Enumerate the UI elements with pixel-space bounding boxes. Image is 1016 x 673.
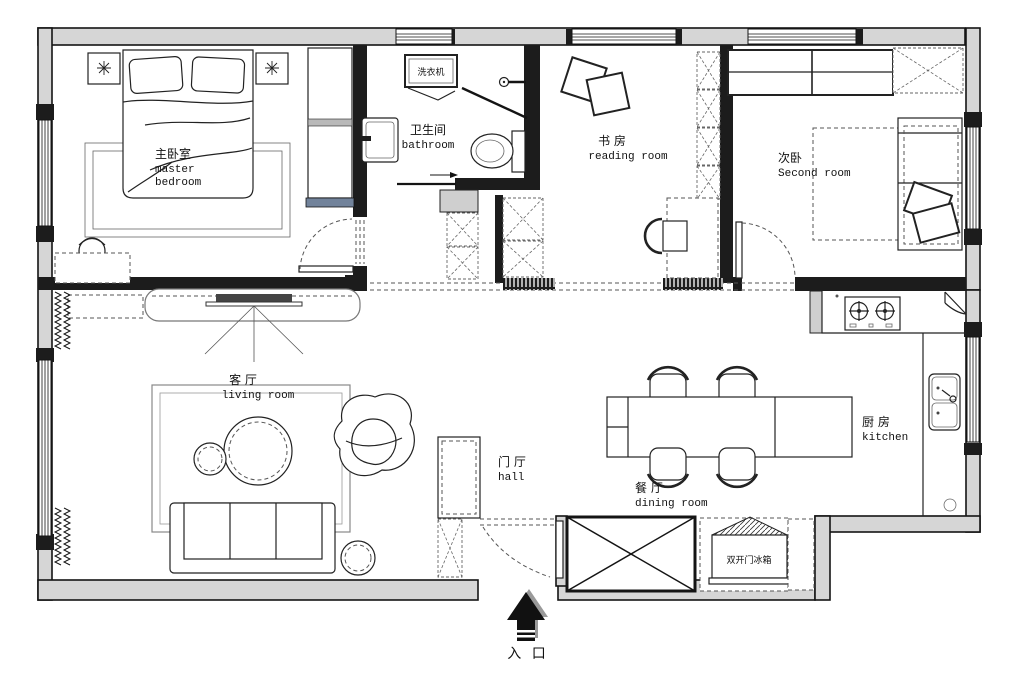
bedroom-desk <box>55 253 130 283</box>
label-dining-room-zh: 餐 厅 <box>635 480 663 495</box>
nightstand-left <box>88 53 120 84</box>
label-living-room-en: living room <box>222 390 295 402</box>
storage-cell <box>697 52 720 89</box>
window-left-bedroom <box>39 120 51 226</box>
nightstand-right <box>256 53 288 84</box>
floor-plan: 主卧室 master bedroom 卫生间 bathroom 洗衣机 书 房 … <box>0 0 1016 673</box>
reading-storage-column <box>697 52 720 199</box>
storage-cell <box>893 48 963 93</box>
desk-chair <box>645 219 662 253</box>
label-bathroom-en: bathroom <box>402 140 455 152</box>
curtain-symbol <box>55 292 70 565</box>
tv <box>216 294 292 302</box>
master-bedroom-door <box>299 219 353 272</box>
future-bed-zone <box>813 128 898 240</box>
storage-cell <box>447 213 478 246</box>
label-reading-room-en: reading room <box>588 151 668 163</box>
daybed <box>898 118 962 250</box>
storage-cell <box>697 128 720 165</box>
label-bathroom-zh: 卫生间 <box>410 123 446 137</box>
shoe-cabinet <box>438 437 480 518</box>
entry-storage-cell <box>438 519 462 577</box>
corner-cabinet <box>945 292 966 314</box>
entry-cabinet <box>788 519 814 590</box>
kitchen-sink <box>929 374 960 430</box>
sink-faucet <box>355 136 371 141</box>
dining-chair <box>717 448 757 487</box>
storage-cell <box>503 198 543 240</box>
reading-room <box>561 52 720 278</box>
label-dining-room-en: dining room <box>635 498 708 510</box>
window-top-second-room <box>748 29 856 44</box>
bedroom-wardrobe <box>306 48 354 207</box>
side-cabinet <box>68 295 143 318</box>
wardrobe-accent-strip <box>306 198 354 207</box>
label-living-room-zh: 客 厅 <box>229 372 257 387</box>
label-master-bedroom-zh: 主卧室 <box>155 146 191 161</box>
slide-arrow-icon <box>450 172 458 178</box>
utility-zone <box>567 517 814 591</box>
label-second-room-en: Second room <box>778 168 851 180</box>
label-second-room-zh: 次卧 <box>778 151 802 165</box>
floor-drain <box>944 499 956 511</box>
label-washing-machine: 洗衣机 <box>417 66 444 78</box>
tv-wall <box>145 289 360 362</box>
storage-cell <box>697 90 720 127</box>
sliding-door-track <box>663 278 723 290</box>
label-master-bedroom-en2: bedroom <box>155 177 202 189</box>
storage-cell <box>503 241 543 277</box>
label-master-bedroom-en1: master <box>155 164 195 176</box>
desk <box>663 221 687 251</box>
coffee-table-small <box>194 443 226 475</box>
label-hall-zh: 门 厅 <box>498 454 526 469</box>
bathroom-sliding-door <box>397 172 458 184</box>
label-entrance: 入 口 <box>507 646 548 662</box>
master-bedroom <box>55 48 354 283</box>
window-top-bathroom <box>396 29 452 44</box>
second-room <box>728 48 963 278</box>
shaft <box>567 517 695 591</box>
window-top-reading <box>572 29 676 44</box>
second-room-door <box>736 222 795 278</box>
sliding-door-track <box>503 278 555 290</box>
living-room <box>55 289 414 575</box>
storage-cell <box>697 166 720 199</box>
entrance-door <box>483 521 563 578</box>
counter-dot <box>836 295 839 298</box>
window-right-second-room <box>967 127 979 229</box>
window-left-living <box>39 360 51 536</box>
floor-plan-drawing: 主卧室 master bedroom 卫生间 bathroom 洗衣机 书 房 … <box>0 0 1016 673</box>
shower <box>462 78 527 119</box>
bathroom-sink <box>355 118 398 162</box>
window-right-kitchen <box>967 337 979 442</box>
stove <box>845 297 900 330</box>
label-fridge: 双开门冰箱 <box>726 554 771 566</box>
side-stool <box>341 541 375 575</box>
second-room-wardrobe <box>728 50 893 95</box>
label-kitchen-zh: 厨 房 <box>862 414 890 429</box>
coffee-table-large <box>224 417 292 485</box>
label-hall-en: hall <box>498 472 524 484</box>
armchair <box>334 394 414 476</box>
label-kitchen-en: kitchen <box>862 432 908 444</box>
storage-cell <box>447 247 478 279</box>
bathroom-shelf <box>408 88 455 100</box>
sofa <box>170 503 335 573</box>
floor-cushion <box>587 73 630 116</box>
dining-room <box>607 367 852 487</box>
entrance-arrow-icon <box>507 589 548 641</box>
toilet <box>471 131 525 172</box>
label-reading-room-zh: 书 房 <box>598 133 626 148</box>
